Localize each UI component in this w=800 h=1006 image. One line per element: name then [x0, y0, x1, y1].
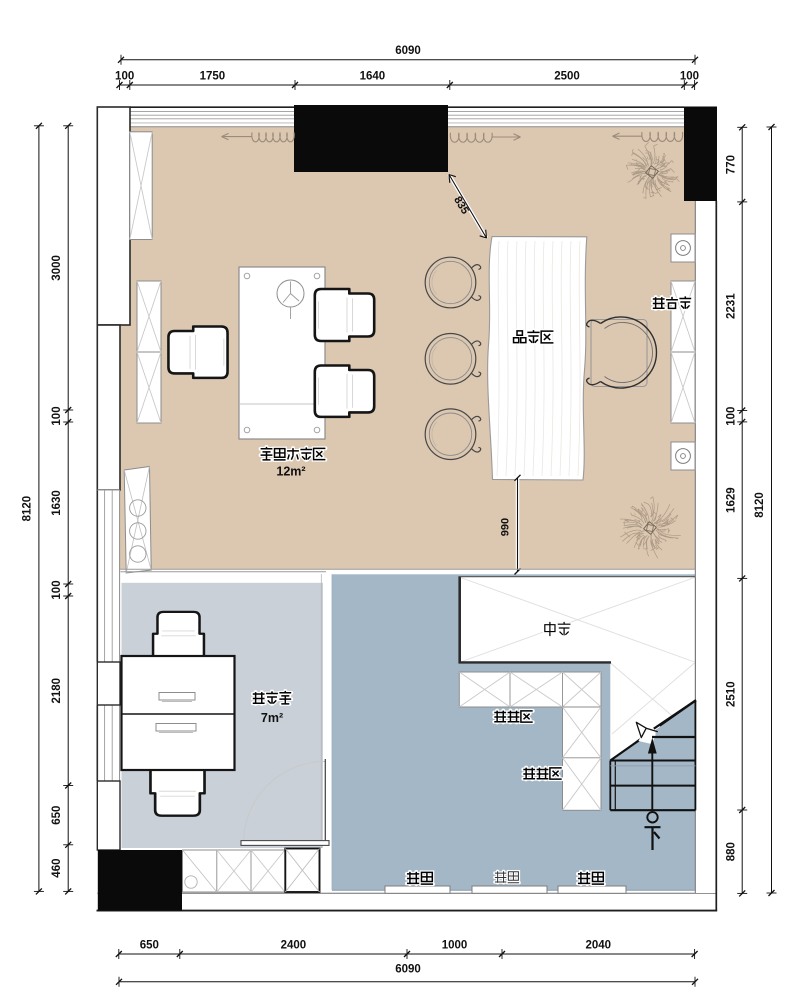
svg-text:3000: 3000 [51, 255, 63, 281]
svg-text:100: 100 [726, 407, 738, 426]
svg-text:100: 100 [51, 580, 63, 599]
svg-text:2500: 2500 [554, 71, 580, 83]
svg-text:100: 100 [680, 71, 699, 83]
svg-text:1640: 1640 [360, 71, 386, 83]
svg-text:100: 100 [51, 406, 63, 425]
svg-text:1630: 1630 [51, 490, 63, 516]
svg-text:100: 100 [115, 71, 134, 83]
svg-text:12m²: 12m² [276, 465, 305, 479]
svg-text:2040: 2040 [586, 940, 612, 952]
svg-text:6090: 6090 [395, 964, 421, 976]
svg-text:1629: 1629 [726, 487, 738, 513]
svg-text:1750: 1750 [200, 71, 226, 83]
svg-text:2400: 2400 [281, 940, 307, 952]
svg-text:460: 460 [51, 859, 63, 878]
svg-text:6090: 6090 [395, 45, 421, 57]
svg-text:2510: 2510 [726, 681, 738, 707]
svg-text:2231: 2231 [726, 293, 738, 319]
svg-text:8120: 8120 [754, 492, 766, 518]
svg-text:880: 880 [726, 842, 738, 861]
svg-text:7m²: 7m² [261, 711, 283, 725]
svg-text:990: 990 [500, 518, 512, 536]
svg-text:770: 770 [726, 155, 738, 174]
svg-text:1000: 1000 [442, 940, 468, 952]
svg-text:8120: 8120 [22, 496, 34, 522]
svg-text:650: 650 [51, 806, 63, 825]
svg-text:650: 650 [140, 940, 159, 952]
svg-text:2180: 2180 [51, 678, 63, 704]
